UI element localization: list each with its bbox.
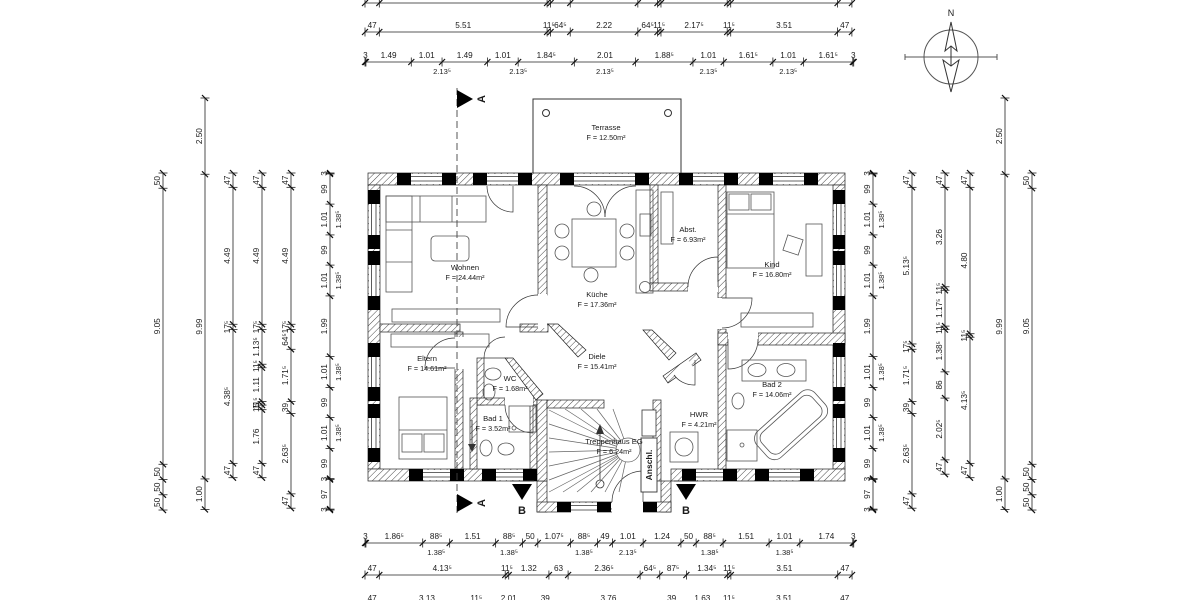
svg-text:99: 99 <box>320 398 329 408</box>
svg-text:4.38⁵: 4.38⁵ <box>223 387 232 406</box>
svg-text:4.49: 4.49 <box>281 247 290 263</box>
svg-text:2.13⁵: 2.13⁵ <box>433 67 451 76</box>
svg-text:2.13⁵: 2.13⁵ <box>700 67 718 76</box>
svg-text:47: 47 <box>368 564 378 573</box>
svg-text:2.63⁵: 2.63⁵ <box>902 444 911 463</box>
svg-text:3.51: 3.51 <box>776 21 792 30</box>
svg-text:1.01: 1.01 <box>320 425 329 441</box>
svg-text:1.07⁵: 1.07⁵ <box>544 532 563 541</box>
section-b-marker-left-icon <box>512 484 532 500</box>
svg-text:1.01: 1.01 <box>776 532 792 541</box>
svg-text:1.38⁵: 1.38⁵ <box>776 548 794 557</box>
svg-text:11⁵: 11⁵ <box>252 360 261 372</box>
section-b-marker-right-icon <box>676 484 696 500</box>
dim-chain-right-col-g: 3991.01991.011.991.01991.019939731.38⁵1.… <box>863 170 886 513</box>
svg-text:3: 3 <box>320 171 329 176</box>
svg-text:50: 50 <box>1022 482 1031 492</box>
svg-text:1.38⁵: 1.38⁵ <box>334 211 343 229</box>
svg-text:11⁵: 11⁵ <box>723 21 735 30</box>
svg-text:1.01: 1.01 <box>863 272 872 288</box>
dim-chain-right-col-j: 474.8011⁵4.13⁵47 <box>960 170 975 481</box>
anschl-label: Anschl. <box>644 450 654 481</box>
dim-chain-bottom-row-3: 473.1311⁵2.01393.76391.6311⁵3.5147 <box>362 594 855 600</box>
svg-text:4.80: 4.80 <box>960 252 969 268</box>
svg-text:50: 50 <box>1022 176 1031 186</box>
svg-text:2.50: 2.50 <box>195 128 204 144</box>
svg-text:1.38⁵: 1.38⁵ <box>334 424 343 442</box>
section-b-label-left: B <box>518 505 526 517</box>
svg-text:17⁵: 17⁵ <box>252 321 261 334</box>
svg-text:2.17⁵: 2.17⁵ <box>684 21 703 30</box>
svg-text:17⁵: 17⁵ <box>281 321 290 334</box>
svg-text:64⁵: 64⁵ <box>281 333 290 346</box>
room-label-6: Diele <box>588 352 605 361</box>
svg-text:99: 99 <box>320 184 329 194</box>
section-b-label-right: B <box>682 505 690 517</box>
svg-text:11⁵: 11⁵ <box>501 564 513 573</box>
svg-text:39: 39 <box>902 403 911 413</box>
section-a-marker-top-icon <box>457 90 473 108</box>
svg-text:2.63⁵: 2.63⁵ <box>281 444 290 463</box>
svg-text:3.51: 3.51 <box>776 594 792 600</box>
dim-chain-left-col-c: 474.4917⁵4.38⁵47 <box>223 170 238 481</box>
svg-text:64⁵: 64⁵ <box>641 21 654 30</box>
svg-text:50: 50 <box>1022 497 1031 507</box>
room-area-10: F = 4.21m² <box>682 420 718 429</box>
room-label-2: Küche <box>586 290 608 299</box>
room-area-7: F = 1.68m² <box>493 384 529 393</box>
room-area-3: F = 6.93m² <box>671 235 707 244</box>
svg-text:1.38⁵: 1.38⁵ <box>701 548 719 557</box>
svg-text:3: 3 <box>851 51 856 60</box>
svg-text:1.01: 1.01 <box>320 211 329 227</box>
room-area-11: F = 6.24m² <box>597 447 633 456</box>
svg-text:9.99: 9.99 <box>195 318 204 334</box>
svg-text:47: 47 <box>840 564 850 573</box>
svg-text:3.26: 3.26 <box>935 229 944 245</box>
svg-text:47: 47 <box>902 175 911 185</box>
svg-text:3: 3 <box>863 171 872 176</box>
svg-text:50: 50 <box>153 482 162 492</box>
svg-text:3.51: 3.51 <box>776 564 792 573</box>
dim-chain-left-col-e: 474.4917⁵64⁵1.71⁵392.63⁵47 <box>281 170 296 511</box>
svg-text:1.01: 1.01 <box>620 532 636 541</box>
room-label-9: Bad 2 <box>762 380 782 389</box>
svg-text:1.61⁵: 1.61⁵ <box>819 51 838 60</box>
svg-text:1.84⁵: 1.84⁵ <box>537 51 556 60</box>
svg-text:1.13⁵: 1.13⁵ <box>252 337 261 356</box>
svg-text:11⁵: 11⁵ <box>653 21 665 30</box>
svg-text:11⁵: 11⁵ <box>960 330 969 342</box>
section-a-label-top: A <box>476 95 488 103</box>
svg-text:1.01: 1.01 <box>863 425 872 441</box>
svg-text:1.01: 1.01 <box>700 51 716 60</box>
svg-text:3: 3 <box>363 51 368 60</box>
room-area-0: F = 12.50m² <box>587 133 627 142</box>
svg-text:1.86⁵: 1.86⁵ <box>385 532 404 541</box>
room-label-11: Treppenhaus EG <box>585 437 643 446</box>
svg-text:1.38⁵: 1.38⁵ <box>334 363 343 381</box>
svg-text:50: 50 <box>153 176 162 186</box>
svg-text:1.51: 1.51 <box>738 532 754 541</box>
svg-text:1.38⁵: 1.38⁵ <box>575 548 593 557</box>
svg-text:88⁵: 88⁵ <box>503 532 516 541</box>
svg-text:5.51: 5.51 <box>455 21 471 30</box>
svg-text:47: 47 <box>840 594 850 600</box>
svg-text:1.01: 1.01 <box>495 51 511 60</box>
svg-text:1.01: 1.01 <box>320 364 329 380</box>
svg-text:39: 39 <box>281 403 290 413</box>
svg-text:1.49: 1.49 <box>457 51 473 60</box>
svg-text:11⁵: 11⁵ <box>543 21 555 30</box>
room-area-9: F = 14.06m² <box>753 390 793 399</box>
svg-text:1.99: 1.99 <box>320 318 329 334</box>
svg-text:9.05: 9.05 <box>1022 318 1031 334</box>
svg-text:88⁵: 88⁵ <box>703 532 716 541</box>
svg-text:99: 99 <box>320 459 329 469</box>
svg-text:2.01: 2.01 <box>597 51 613 60</box>
svg-text:2.13⁵: 2.13⁵ <box>779 67 797 76</box>
dim-chain-top-row-2: 31.491.011.491.011.84⁵2.011.88⁵1.011.61⁵… <box>362 51 857 76</box>
terrace-post-left <box>543 110 550 117</box>
svg-text:47: 47 <box>223 466 232 476</box>
room-label-5: Eltern <box>417 354 437 363</box>
svg-text:17⁵: 17⁵ <box>902 340 911 353</box>
svg-text:2.22: 2.22 <box>596 21 612 30</box>
svg-text:50: 50 <box>1022 467 1031 477</box>
svg-text:97: 97 <box>320 489 329 499</box>
svg-text:3: 3 <box>320 507 329 512</box>
svg-text:3: 3 <box>863 476 872 481</box>
svg-text:17⁵: 17⁵ <box>223 321 232 334</box>
svg-text:47: 47 <box>960 466 969 476</box>
shaft-box <box>642 410 656 436</box>
anschl-box: Anschl. <box>641 410 657 492</box>
svg-text:2.36⁵: 2.36⁵ <box>594 564 613 573</box>
svg-text:99: 99 <box>320 245 329 255</box>
room-label-10: HWR <box>690 410 709 419</box>
svg-text:1.38⁵: 1.38⁵ <box>877 211 886 229</box>
svg-text:2.50: 2.50 <box>995 128 1004 144</box>
svg-text:64⁵: 64⁵ <box>644 564 657 573</box>
room-area-2: F = 17.36m² <box>578 300 618 309</box>
dim-chain-left-col-b: 2.509.991.00 <box>195 95 210 512</box>
dim-chain-right-col-h: 475.13⁵17⁵1.71⁵392.63⁵47 <box>902 170 917 511</box>
svg-text:4.13⁵: 4.13⁵ <box>960 391 969 410</box>
svg-text:1.49: 1.49 <box>381 51 397 60</box>
svg-text:1.38⁵: 1.38⁵ <box>935 341 944 360</box>
room-label-8: Bad 1 <box>483 414 503 423</box>
svg-text:50: 50 <box>153 467 162 477</box>
svg-text:63: 63 <box>554 564 564 573</box>
svg-text:1.38⁵: 1.38⁵ <box>877 424 886 442</box>
north-arrow-icon: N <box>905 8 997 92</box>
dim-chain-bottom-row-1: 31.86⁵88⁵1.5188⁵501.07⁵88⁵491.011.245088… <box>362 532 857 557</box>
svg-text:1.38⁵: 1.38⁵ <box>500 548 518 557</box>
dim-chain-right-col-i: 473.2611⁵1.17⁵11⁵1.38⁵862.02⁵47 <box>935 170 950 477</box>
room-area-6: F = 15.41m² <box>578 362 618 371</box>
section-a-marker-bottom-icon <box>457 494 473 512</box>
svg-text:47: 47 <box>223 175 232 185</box>
svg-text:86: 86 <box>935 380 944 390</box>
svg-text:1.01: 1.01 <box>863 211 872 227</box>
svg-text:50: 50 <box>153 497 162 507</box>
svg-text:4.49: 4.49 <box>252 247 261 263</box>
floorplan-drawing: A A B B N Anschl. TerrasseF = 12.50m²Woh… <box>0 0 1200 600</box>
svg-text:39: 39 <box>541 594 551 600</box>
svg-text:39: 39 <box>667 594 677 600</box>
room-area-1: F = 24.44m² <box>446 273 486 282</box>
dim-chain-left-col-a: 509.05505050 <box>153 170 168 513</box>
svg-text:2.13⁵: 2.13⁵ <box>619 548 637 557</box>
svg-text:1.38⁵: 1.38⁵ <box>877 272 886 290</box>
svg-text:1.88⁵: 1.88⁵ <box>655 51 674 60</box>
svg-text:1.38⁵: 1.38⁵ <box>334 272 343 290</box>
svg-text:1.61⁵: 1.61⁵ <box>739 51 758 60</box>
svg-text:99: 99 <box>863 398 872 408</box>
room-label-7: WC <box>504 374 517 383</box>
svg-text:1.76: 1.76 <box>252 428 261 444</box>
svg-text:1.51: 1.51 <box>465 532 481 541</box>
svg-text:4.49: 4.49 <box>223 247 232 263</box>
svg-text:1.11: 1.11 <box>252 377 261 393</box>
svg-text:1.38⁵: 1.38⁵ <box>877 363 886 381</box>
room-area-4: F = 16.80m² <box>753 270 793 279</box>
terrace-post-right <box>665 110 672 117</box>
svg-text:99: 99 <box>863 459 872 469</box>
dim-chain-bottom-row-2: 474.13⁵11⁵1.32632.36⁵64⁵87⁵1.34⁵11⁵3.514… <box>362 564 855 580</box>
svg-text:49: 49 <box>600 532 610 541</box>
room-area-8: F = 3.52m² <box>476 424 512 433</box>
svg-text:11⁵: 11⁵ <box>935 322 944 334</box>
svg-text:64⁵: 64⁵ <box>554 21 567 30</box>
svg-text:88⁵: 88⁵ <box>430 532 443 541</box>
svg-text:99: 99 <box>863 184 872 194</box>
room-label-0: Terrasse <box>591 123 620 132</box>
section-a-label-bottom: A <box>476 499 488 507</box>
svg-text:11⁵: 11⁵ <box>470 594 482 600</box>
svg-text:11⁵: 11⁵ <box>935 283 944 295</box>
svg-text:50: 50 <box>526 532 536 541</box>
svg-text:87⁵: 87⁵ <box>667 564 680 573</box>
svg-text:1.34⁵: 1.34⁵ <box>697 564 716 573</box>
north-label: N <box>948 8 955 18</box>
svg-text:47: 47 <box>960 175 969 185</box>
svg-text:1.01: 1.01 <box>419 51 435 60</box>
svg-text:1.24: 1.24 <box>654 532 670 541</box>
svg-text:2.01: 2.01 <box>501 594 517 600</box>
dim-chain-right-col-k: 2.509.991.00 <box>995 95 1010 512</box>
svg-text:1.38⁵: 1.38⁵ <box>427 548 445 557</box>
svg-text:47: 47 <box>902 496 911 506</box>
svg-text:1.01: 1.01 <box>863 364 872 380</box>
svg-text:5.13⁵: 5.13⁵ <box>902 256 911 275</box>
svg-text:3: 3 <box>863 507 872 512</box>
svg-text:9.99: 9.99 <box>995 318 1004 334</box>
svg-text:97: 97 <box>863 489 872 499</box>
svg-text:11⁵: 11⁵ <box>723 594 735 600</box>
svg-text:1.00: 1.00 <box>195 486 204 502</box>
svg-text:47: 47 <box>252 466 261 476</box>
room-label-1: Wohnen <box>451 263 479 272</box>
svg-text:1.01: 1.01 <box>780 51 796 60</box>
svg-text:15: 15 <box>252 402 261 412</box>
svg-text:1.17⁵: 1.17⁵ <box>935 299 944 318</box>
svg-text:11⁵: 11⁵ <box>723 564 735 573</box>
svg-text:47: 47 <box>368 594 378 600</box>
svg-text:1.71⁵: 1.71⁵ <box>281 366 290 385</box>
svg-text:47: 47 <box>281 496 290 506</box>
room-label-3: Abst. <box>679 225 696 234</box>
dim-chain-left-col-d: 474.4917⁵1.13⁵11⁵1.1111⁵151.7647 <box>252 170 267 481</box>
svg-text:50: 50 <box>684 532 694 541</box>
svg-text:4.13⁵: 4.13⁵ <box>433 564 452 573</box>
svg-text:99: 99 <box>863 245 872 255</box>
svg-text:1.01: 1.01 <box>320 272 329 288</box>
svg-text:1.71⁵: 1.71⁵ <box>902 366 911 385</box>
svg-text:3.76: 3.76 <box>600 594 616 600</box>
svg-text:2.13⁵: 2.13⁵ <box>596 67 614 76</box>
svg-text:1.99: 1.99 <box>863 318 872 334</box>
svg-text:9.05: 9.05 <box>153 318 162 334</box>
room-label-4: Kind <box>764 260 779 269</box>
svg-text:1.32: 1.32 <box>521 564 537 573</box>
svg-text:47: 47 <box>252 175 261 185</box>
svg-text:3: 3 <box>363 532 368 541</box>
dim-chain-left-col-f: 3991.01991.011.991.01991.019939731.38⁵1.… <box>320 170 343 513</box>
dim-chain-right-col-l: 509.05505050 <box>1022 170 1037 513</box>
floorplan-canvas: A A B B N Anschl. TerrasseF = 12.50m²Woh… <box>0 0 1200 600</box>
dim-chain-top-row-0 <box>362 0 855 8</box>
svg-text:47: 47 <box>840 21 850 30</box>
svg-text:3: 3 <box>851 532 856 541</box>
svg-text:2.02⁵: 2.02⁵ <box>935 419 944 438</box>
svg-text:3: 3 <box>320 476 329 481</box>
svg-text:47: 47 <box>935 175 944 185</box>
svg-text:3.13: 3.13 <box>419 594 435 600</box>
svg-text:88⁵: 88⁵ <box>578 532 591 541</box>
svg-text:1.74: 1.74 <box>818 532 834 541</box>
svg-text:1.00: 1.00 <box>995 486 1004 502</box>
svg-text:47: 47 <box>935 462 944 472</box>
dim-chain-top-row-1: 475.5111⁵64⁵2.2264⁵11⁵2.17⁵11⁵3.5147 <box>362 21 855 37</box>
svg-text:47: 47 <box>368 21 378 30</box>
svg-text:2.13⁵: 2.13⁵ <box>509 67 527 76</box>
svg-text:1.63: 1.63 <box>694 594 710 600</box>
room-area-5: F = 14.61m² <box>408 364 448 373</box>
svg-text:47: 47 <box>281 175 290 185</box>
